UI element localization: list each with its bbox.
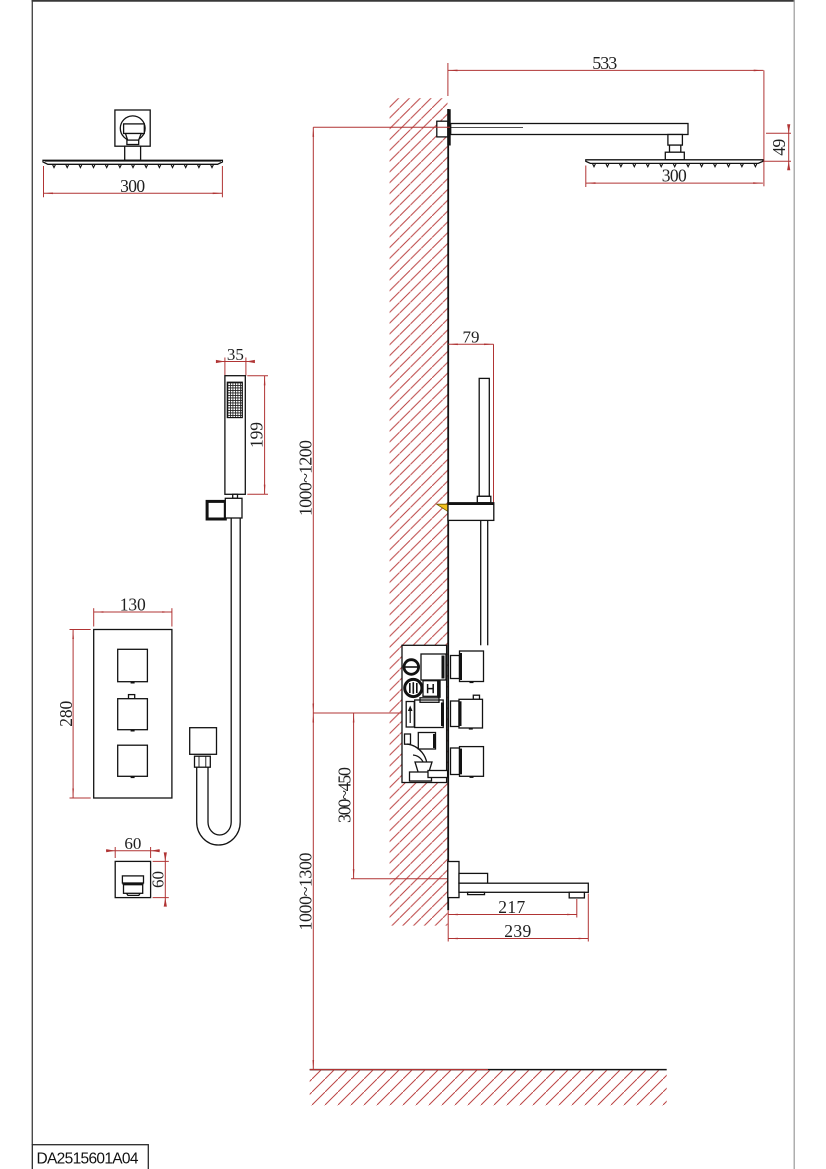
svg-text:79: 79 xyxy=(463,328,480,347)
svg-text:533: 533 xyxy=(592,53,617,73)
svg-text:217: 217 xyxy=(498,897,525,917)
svg-text:DA2515601A04: DA2515601A04 xyxy=(37,1151,139,1168)
svg-text:130: 130 xyxy=(120,594,146,614)
svg-text:300: 300 xyxy=(120,176,145,196)
svg-text:239: 239 xyxy=(504,921,531,941)
svg-text:49: 49 xyxy=(769,138,789,155)
svg-text:35: 35 xyxy=(227,345,244,364)
svg-text:60: 60 xyxy=(124,834,141,853)
svg-text:199: 199 xyxy=(246,422,266,448)
svg-text:1000~1300: 1000~1300 xyxy=(295,853,315,931)
svg-text:300~450: 300~450 xyxy=(335,767,355,823)
svg-text:1000~1200: 1000~1200 xyxy=(295,440,315,516)
svg-text:280: 280 xyxy=(56,701,76,727)
svg-text:300: 300 xyxy=(662,166,687,186)
